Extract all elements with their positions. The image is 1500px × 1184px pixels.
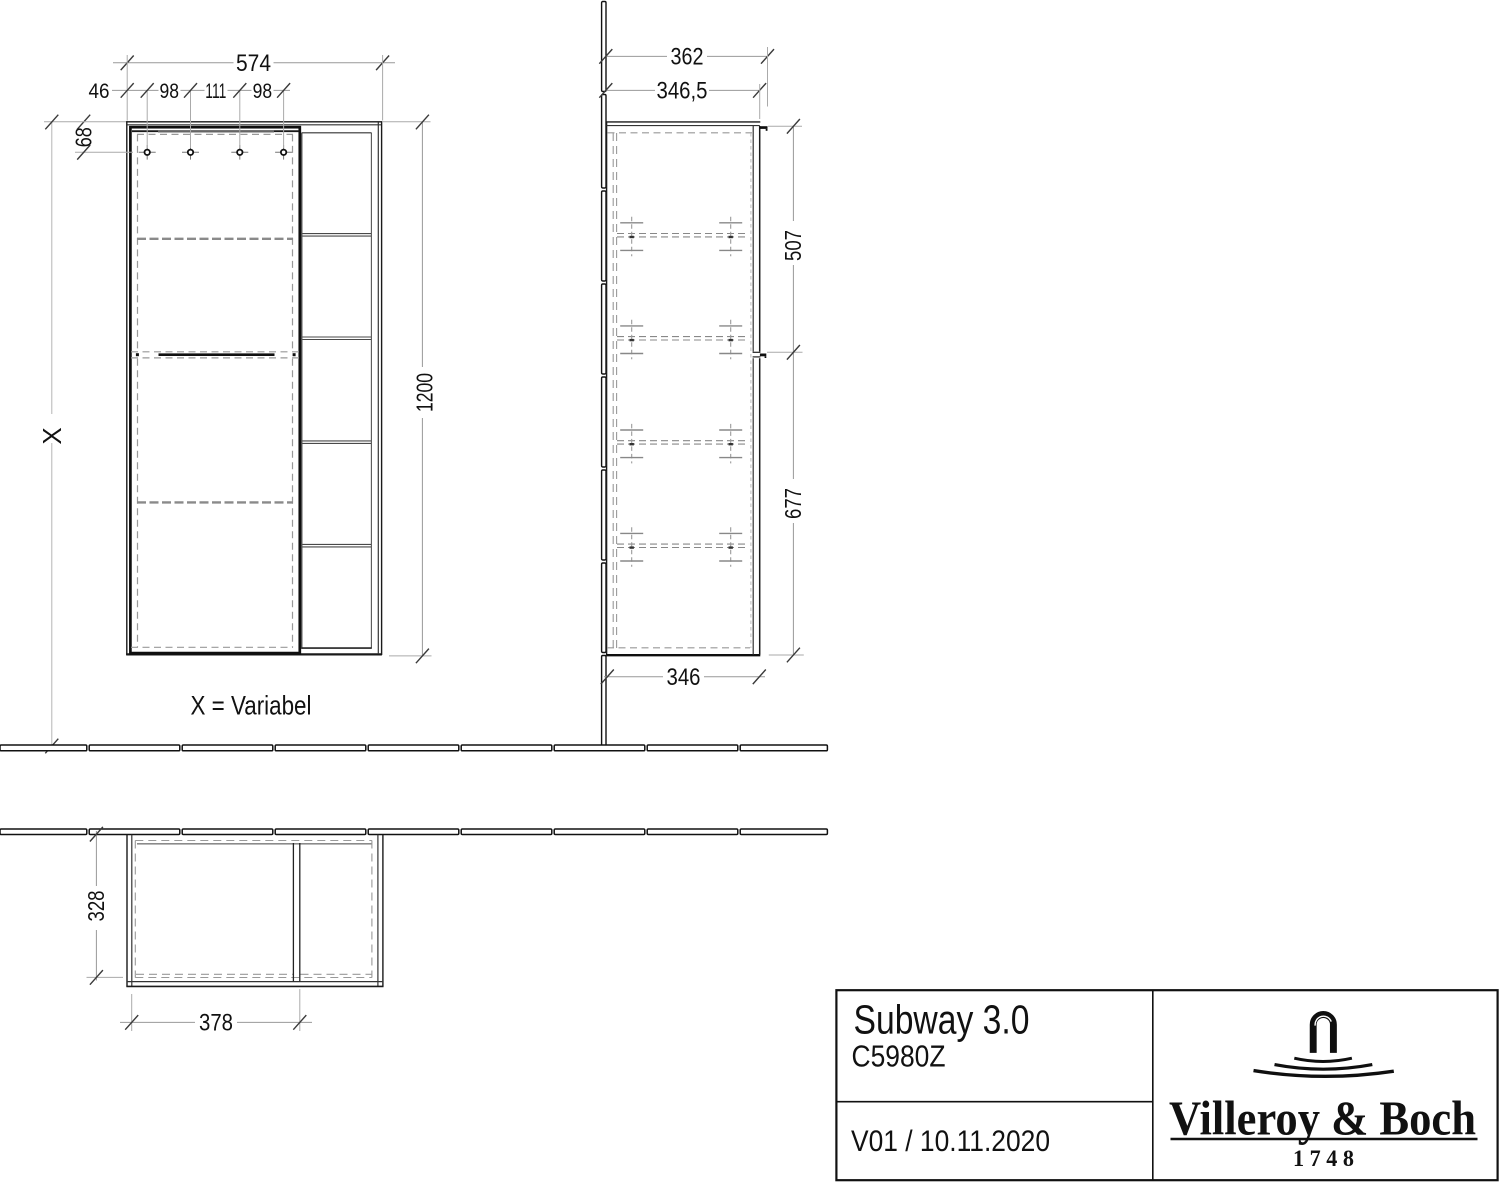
svg-text:V01 / 10.11.2020: V01 / 10.11.2020 <box>851 1125 1050 1158</box>
svg-text:111: 111 <box>205 79 226 103</box>
svg-text:1200: 1200 <box>411 373 437 412</box>
svg-text:574: 574 <box>236 50 271 77</box>
svg-text:362: 362 <box>671 44 704 71</box>
svg-text:C5980Z: C5980Z <box>852 1039 946 1074</box>
svg-text:328: 328 <box>83 891 109 922</box>
svg-text:378: 378 <box>199 1010 233 1037</box>
svg-text:98: 98 <box>160 79 180 103</box>
svg-text:X = Variabel: X = Variabel <box>191 691 312 721</box>
svg-text:46: 46 <box>89 79 110 103</box>
svg-text:346: 346 <box>667 664 701 691</box>
svg-text:68: 68 <box>71 127 97 147</box>
svg-text:677: 677 <box>780 488 806 519</box>
svg-text:507: 507 <box>780 230 806 261</box>
svg-text:X: X <box>37 427 67 444</box>
svg-text:346,5: 346,5 <box>657 78 708 105</box>
svg-text:Subway 3.0: Subway 3.0 <box>854 997 1030 1043</box>
svg-text:98: 98 <box>253 79 273 103</box>
svg-text:1 7 4 8: 1 7 4 8 <box>1293 1146 1354 1171</box>
svg-text:Villeroy & Boch: Villeroy & Boch <box>1169 1091 1476 1146</box>
